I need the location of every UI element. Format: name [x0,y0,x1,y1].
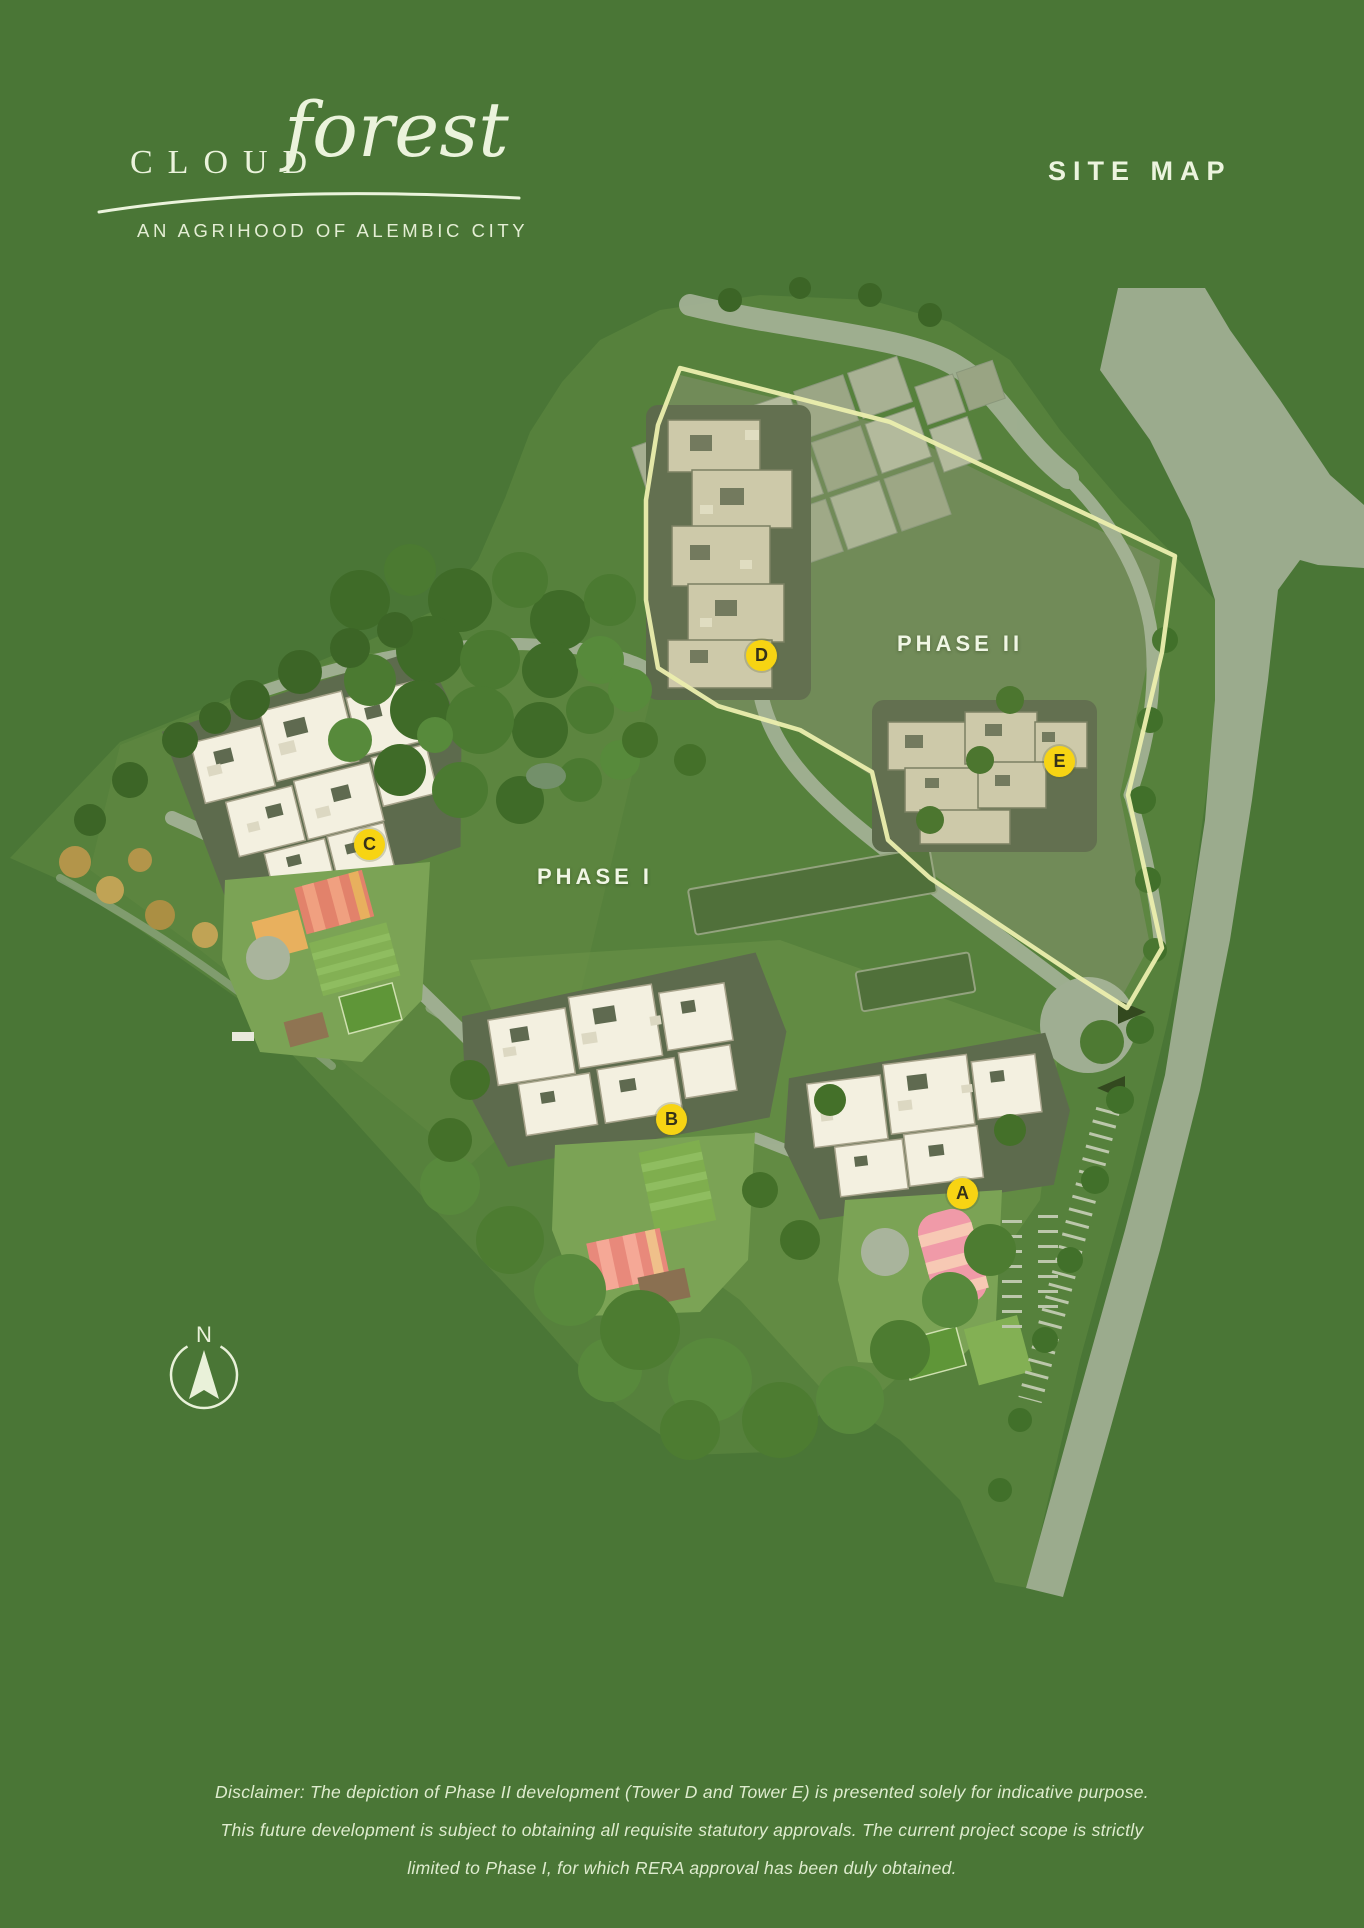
logo-wordmark-forest: forest [284,92,509,168]
logo-tagline: AN AGRIHOOD OF ALEMBIC CITY [137,220,528,242]
tower-marker-d: D [746,640,777,671]
phase2-label: PHASE II [897,631,1023,657]
site-map-page: { "page": { "background_color": "#4a7636… [0,0,1364,1928]
disclaimer-line-3: limited to Phase I, for which RERA appro… [0,1849,1364,1887]
phase1-label: PHASE I [537,864,653,890]
page-title: SITE MAP [1048,156,1232,187]
compass-north-label: N [196,1322,212,1347]
north-arrow-icon [189,1350,219,1399]
tower-marker-c: C [354,829,385,860]
disclaimer: Disclaimer: The depiction of Phase II de… [0,1773,1364,1887]
tower-marker-e: E [1044,746,1075,777]
disclaimer-line-2: This future development is subject to ob… [0,1811,1364,1849]
tower-marker-b: B [656,1104,687,1135]
tower-marker-a: A [947,1178,978,1209]
logo-swoosh [95,186,525,218]
site-map-illustration [0,0,1364,1928]
disclaimer-line-1: Disclaimer: The depiction of Phase II de… [0,1773,1364,1811]
north-compass-icon: N [158,1318,250,1418]
